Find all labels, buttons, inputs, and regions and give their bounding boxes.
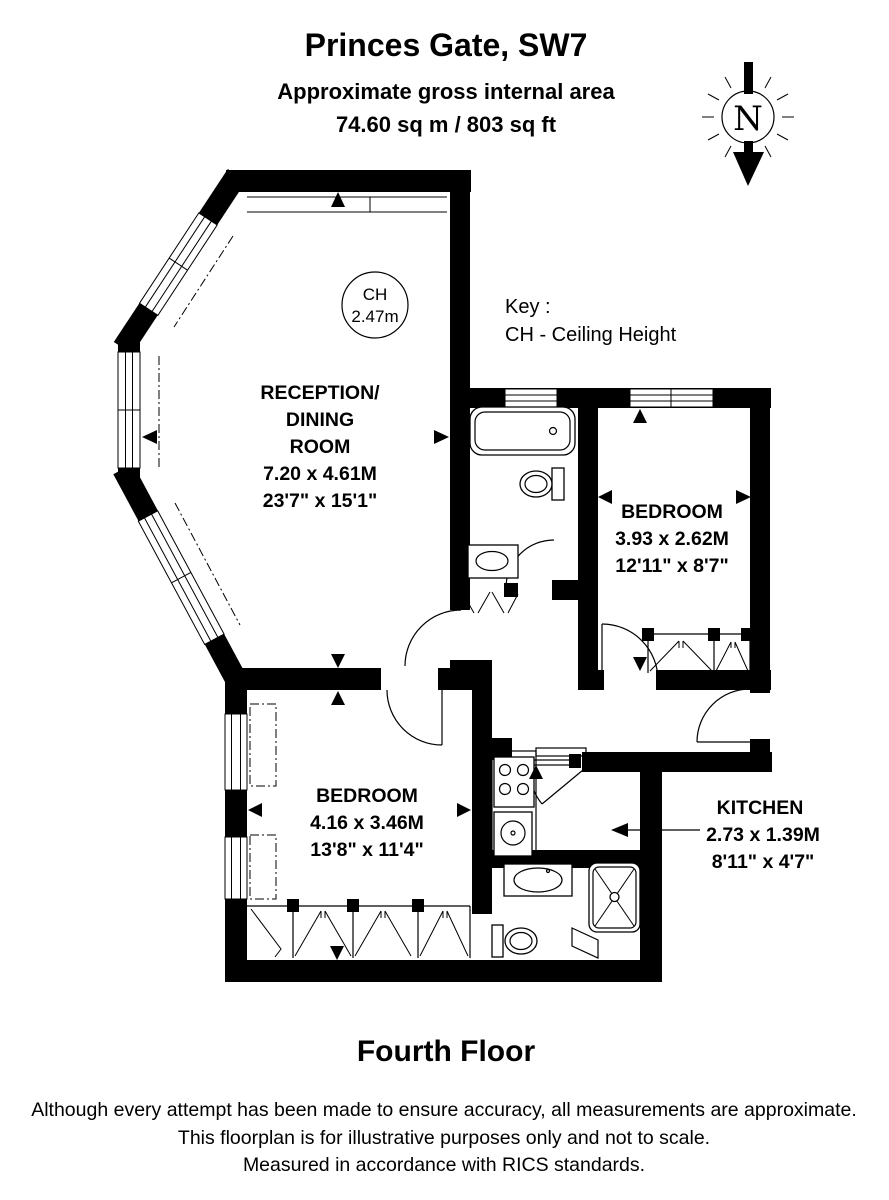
reception-top-recess: [247, 197, 447, 212]
bedroom2-window-upper: [225, 714, 247, 790]
compass-stem: [744, 62, 753, 94]
door-arc-entrance: [697, 689, 750, 742]
reception-name-3: ROOM: [290, 436, 351, 458]
bathroom-window: [505, 389, 557, 407]
bedroom2-name: BEDROOM: [316, 785, 418, 807]
arrow-left: [611, 823, 628, 837]
bedroom1-name: BEDROOM: [621, 501, 723, 523]
bay-window-upper: [140, 213, 218, 315]
wardrobe-icon: [716, 642, 748, 671]
key-legend: Key : CH - Ceiling Height: [505, 296, 677, 346]
bedroom2-label: BEDROOM 4.16 x 3.46M 13'8" x 11'4": [310, 785, 424, 861]
north-arrow-icon: [733, 152, 764, 186]
bedroom2-window-lower: [225, 837, 247, 899]
ch-value: 2.47m: [351, 307, 398, 326]
shower-drain: [610, 893, 619, 902]
bathtub-icon: [470, 407, 575, 455]
kitchen-dims-imperial: 8'11" x 4'7": [712, 851, 815, 873]
door-arc-bedroom2: [387, 690, 442, 745]
floorplan-page: Princes Gate, SW7 Approximate gross inte…: [0, 0, 889, 1200]
key-entry: CH - Ceiling Height: [505, 324, 677, 346]
door-arc-reception: [405, 610, 461, 666]
compass-n-label: N: [733, 99, 763, 139]
sink-icon: [494, 812, 532, 856]
wardrobe-jamb: [642, 628, 654, 641]
arrow-down: [330, 946, 344, 960]
arrow-up: [331, 192, 345, 207]
ch-circle: [342, 272, 408, 338]
arrow-down: [633, 657, 647, 671]
kitchen-name: KITCHEN: [717, 797, 804, 819]
page-title: Princes Gate, SW7: [305, 27, 588, 63]
kitchen-fixtures: [492, 748, 586, 859]
bedroom1-label: BEDROOM 3.93 x 2.62M 12'11" x 8'7": [615, 501, 729, 577]
reception-name-1: RECEPTION/: [260, 382, 380, 404]
wardrobe-icon: [295, 911, 351, 956]
wardrobe-jamb: [287, 899, 299, 912]
wardrobe-icon: [420, 911, 468, 956]
wardrobe-icon: [355, 911, 411, 956]
compass-icon: N: [702, 62, 794, 186]
hob-icon: [494, 757, 534, 807]
arrow-left: [598, 490, 612, 504]
disclaimer-line-1: Although every attempt has been made to …: [31, 1099, 857, 1121]
arrow-up: [633, 409, 647, 423]
page-subtitle: Approximate gross internal area: [277, 79, 615, 104]
reception-label: RECEPTION/ DINING ROOM 7.20 x 4.61M 23'7…: [260, 382, 380, 512]
disclaimer-line-2: This floorplan is for illustrative purpo…: [178, 1127, 710, 1149]
arrow-right: [434, 430, 449, 444]
floorplan-svg: Princes Gate, SW7 Approximate gross inte…: [0, 0, 889, 1200]
reception-dims-metric: 7.20 x 4.61M: [263, 463, 377, 485]
wardrobe-jamb: [741, 628, 750, 641]
kitchen-label: KITCHEN 2.73 x 1.39M 8'11" x 4'7": [706, 797, 820, 873]
bedroom2-dims-imperial: 13'8" x 11'4": [310, 839, 423, 861]
arrow-up: [331, 691, 345, 705]
bedroom1-window: [630, 389, 713, 407]
ceiling-height-badge: CH 2.47m: [342, 272, 408, 338]
bay-window-left: [118, 352, 140, 468]
key-title: Key :: [505, 296, 551, 318]
arrow-left: [248, 803, 262, 817]
reception-name-2: DINING: [286, 409, 354, 431]
page-area: 74.60 sq m / 803 sq ft: [336, 112, 557, 137]
wardrobe-jamb: [347, 899, 359, 912]
arrow-down: [331, 654, 345, 668]
arrow-right: [736, 490, 751, 504]
header: Princes Gate, SW7 Approximate gross inte…: [277, 27, 615, 137]
wardrobe-icon: [650, 641, 712, 671]
bedroom2-wardrobe: [247, 899, 470, 958]
floor-label: Fourth Floor: [357, 1035, 536, 1068]
bay-window-lower: [138, 511, 224, 645]
wardrobe-jamb: [708, 628, 720, 641]
ch-abbr: CH: [363, 285, 388, 304]
disclaimer: Although every attempt has been made to …: [31, 1099, 857, 1176]
bedroom1-wardrobe: [642, 628, 750, 673]
door-leaf-shower-room: [572, 928, 598, 958]
recess-dash-bedroom2-upper: [250, 704, 276, 786]
arrow-left: [142, 430, 157, 444]
kitchen-dims-metric: 2.73 x 1.39M: [706, 824, 820, 846]
recess-dash-bedroom2-lower: [250, 835, 276, 899]
bedroom1-dims-imperial: 12'11" x 8'7": [615, 555, 728, 577]
shower-room-fixtures: [492, 863, 640, 957]
reception-dims-imperial: 23'7" x 15'1": [263, 490, 378, 512]
toilet-tank-icon: [552, 468, 564, 500]
bedroom1-dims-metric: 3.93 x 2.62M: [615, 528, 729, 550]
bedroom2-dims-metric: 4.16 x 3.46M: [310, 812, 424, 834]
disclaimer-line-3: Measured in accordance with RICS standar…: [243, 1154, 645, 1176]
arrow-right: [457, 803, 471, 817]
door-leaf-kitchen: [542, 770, 583, 804]
wardrobe-jamb: [412, 899, 424, 912]
closet-door-ajar: [251, 909, 281, 957]
toilet2-tank-icon: [492, 925, 503, 957]
